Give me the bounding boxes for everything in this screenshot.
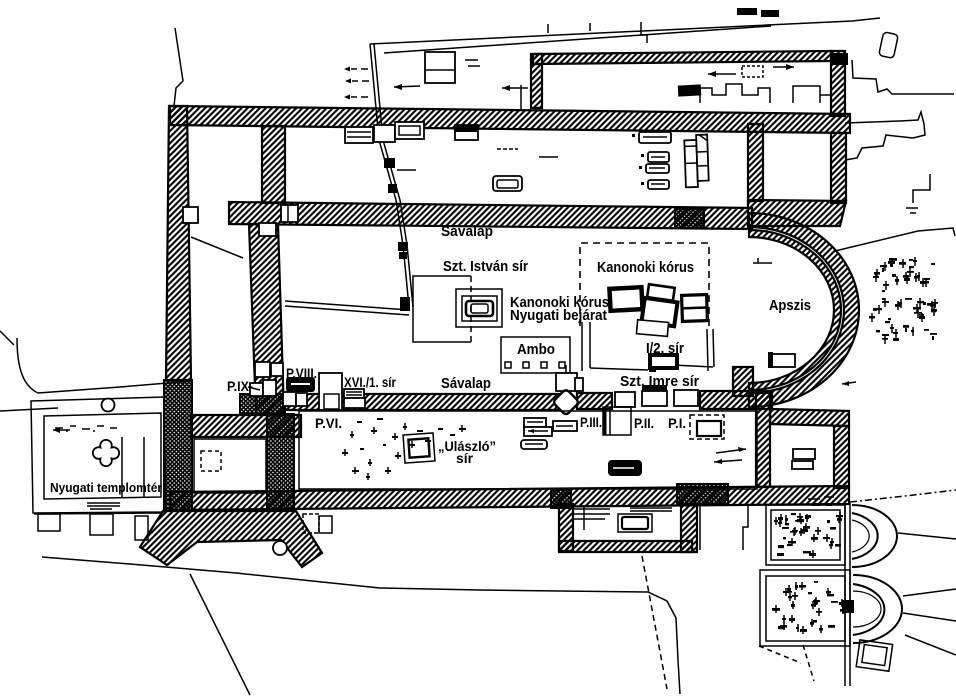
svg-text:P.III.: P.III. — [580, 414, 602, 430]
svg-text:P.VI.: P.VI. — [315, 415, 342, 431]
svg-text:Sávalap: Sávalap — [441, 223, 493, 240]
svg-text:Szt. István sír: Szt. István sír — [443, 258, 528, 275]
svg-text:P.II.: P.II. — [634, 415, 654, 431]
svg-text:P.I.: P.I. — [668, 415, 686, 431]
svg-text:Szt. Imre sír: Szt. Imre sír — [620, 373, 699, 390]
svg-text:Nyugati templomtér: Nyugati templomtér — [50, 480, 162, 495]
svg-text:Nyugati bejárat: Nyugati bejárat — [510, 307, 607, 324]
svg-text:Ambo: Ambo — [517, 341, 555, 358]
svg-text:XVI./1. sír: XVI./1. sír — [344, 374, 396, 390]
svg-text:sír: sír — [456, 450, 474, 466]
svg-text:Kanonoki kórus: Kanonoki kórus — [597, 259, 694, 276]
svg-text:Apszis: Apszis — [769, 297, 811, 314]
svg-text:I/2. sír: I/2. sír — [646, 340, 684, 357]
svg-text:P.IX-: P.IX- — [227, 378, 253, 394]
svg-text:Sávalap: Sávalap — [441, 375, 491, 392]
svg-text:P.VIII.: P.VIII. — [286, 365, 317, 381]
